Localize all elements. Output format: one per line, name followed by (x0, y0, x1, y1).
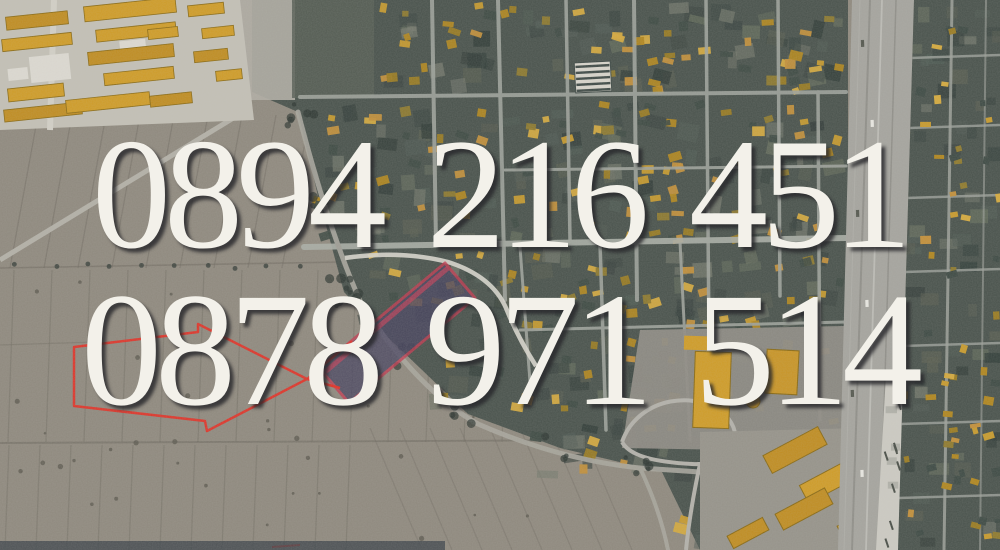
phone-number-watermark-primary: 0894 216 451 (92, 116, 905, 274)
satellite-map: 0894 216 451 0878 971 514 (0, 0, 1000, 550)
phone-number-watermark-secondary: 0878 971 514 (81, 270, 916, 432)
